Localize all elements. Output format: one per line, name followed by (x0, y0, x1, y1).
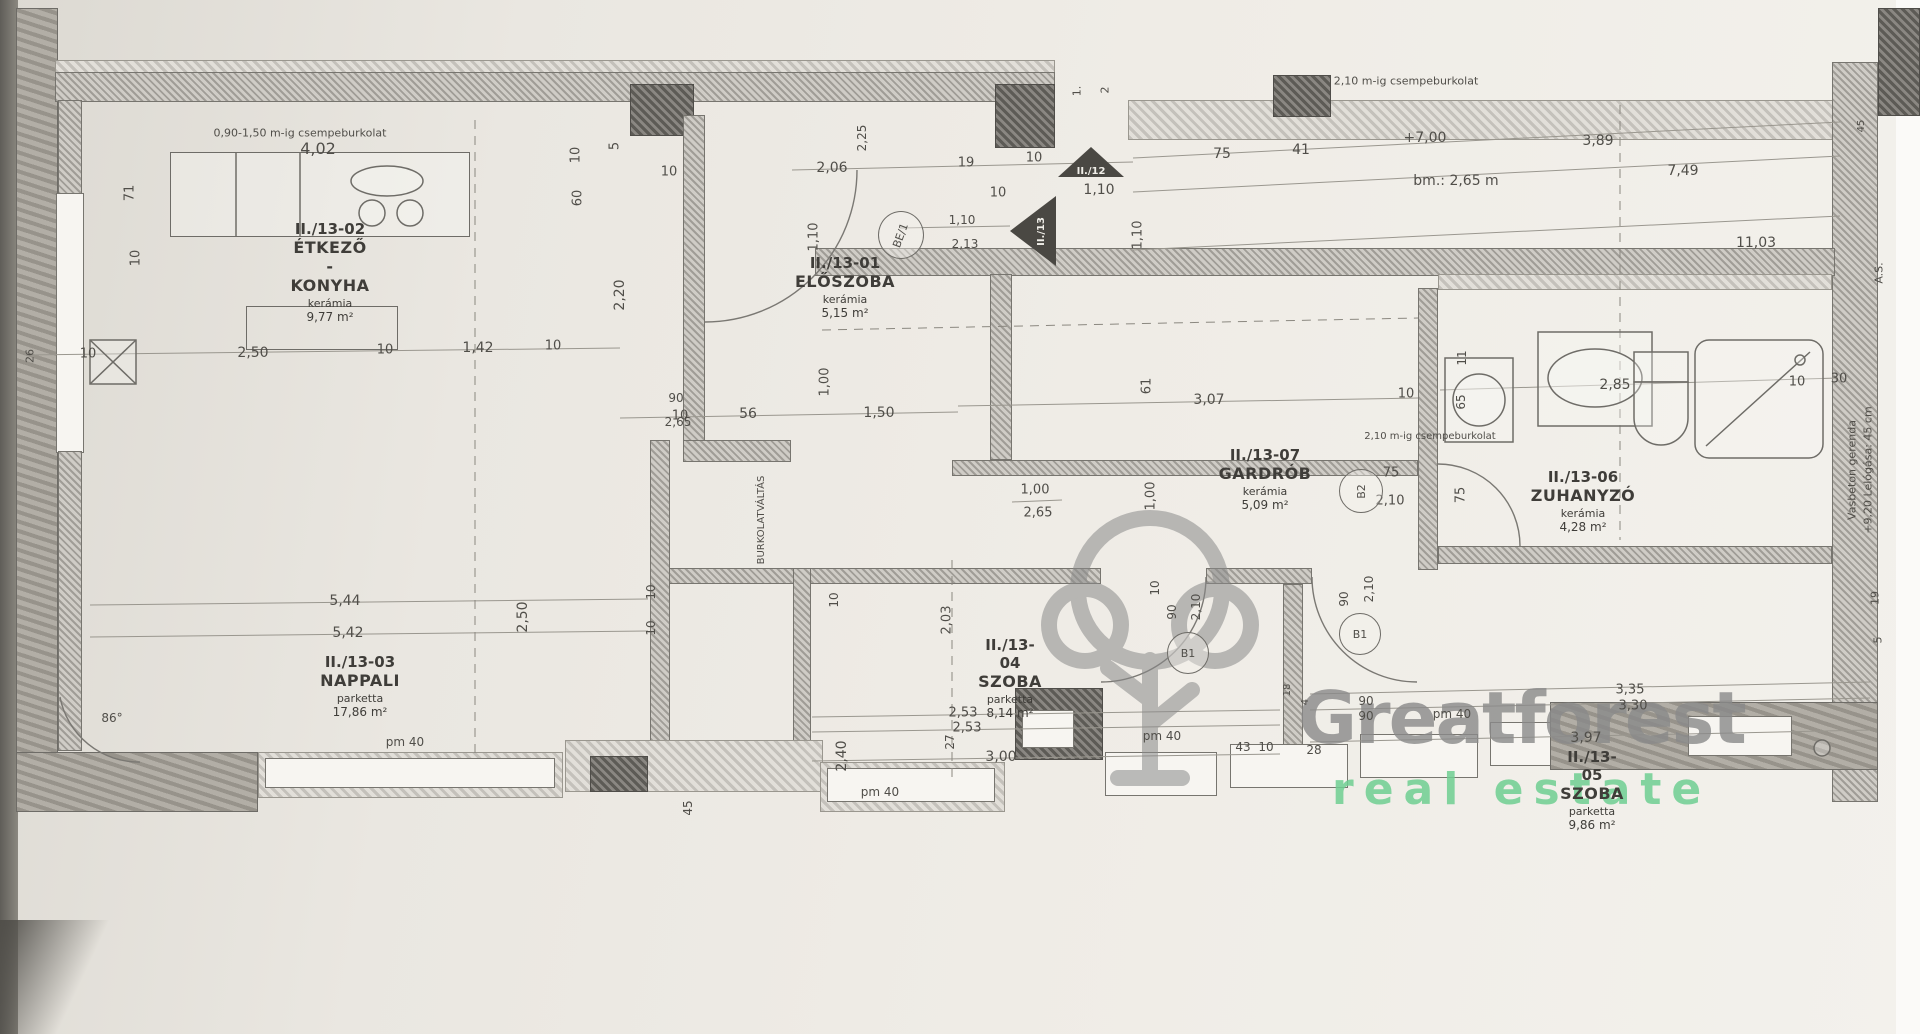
dim-label: 10 (1149, 580, 1161, 595)
dim-label: 19 (958, 157, 975, 170)
room-floor: parketta (978, 693, 1042, 706)
dim-label: 1,50 (863, 406, 894, 420)
dim-label: 5 (1873, 637, 1884, 644)
dim-label: 2,50 (237, 346, 268, 360)
dim-label: 28 (1306, 744, 1321, 756)
dim-label: BURKOLATVÁLTÁS (757, 476, 767, 565)
dim-label: 43 (1235, 741, 1250, 753)
room-name: ÉTKEZŐ - KONYHA (290, 238, 369, 295)
room-floor: parketta (320, 692, 400, 705)
room-floor: kerámia (1219, 485, 1312, 498)
dim-label: pm 40 (1143, 730, 1181, 742)
room-id: II./13-04 (978, 636, 1042, 672)
dim-label: 5 (609, 142, 622, 150)
dim-label: A.S. (1874, 262, 1885, 283)
dim-label: 26 (25, 349, 36, 363)
dim-label: 2,65 (665, 416, 692, 428)
dim-label: 10 (570, 147, 583, 164)
dim-label: 90 (1358, 710, 1373, 722)
floorplan-scan: Greatforest real estate II./13-01ELŐSZOB… (0, 0, 1920, 1034)
room-name: NAPPALI (320, 671, 400, 690)
dim-label: 1,10 (1083, 183, 1114, 197)
room-area: 9,86 m² (1560, 818, 1624, 832)
dim-label: 2,10 (1363, 576, 1375, 603)
dim-label: 4 (1301, 699, 1311, 705)
room-id: II./13-03 (320, 653, 400, 671)
room-id: II./13-02 (290, 220, 369, 238)
dim-label: 30 (1831, 373, 1848, 386)
level-triangle-label: II./12 (1077, 166, 1106, 177)
dim-label: Vasbeton gerenda (1847, 420, 1858, 520)
dim-label: 1,00 (1145, 482, 1158, 511)
room-id: II./13-07 (1219, 446, 1312, 464)
dim-label: pm 40 (1433, 708, 1471, 720)
room-label: II./13-02ÉTKEZŐ - KONYHAkerámia9,77 m² (290, 220, 369, 324)
dim-label: 1,42 (462, 341, 493, 355)
dim-label: 3,97 (1570, 731, 1601, 745)
room-name: SZOBA (1560, 784, 1624, 803)
room-id: II./13-06 (1531, 468, 1636, 486)
dim-label: 10 (1258, 741, 1273, 753)
dim-label: 2,65 (1024, 507, 1053, 520)
dim-label: pm 40 (386, 736, 424, 748)
dim-label: 2,10 (1190, 594, 1202, 621)
room-name: GARDRÓB (1219, 464, 1312, 483)
dim-label: 1,00 (1021, 484, 1050, 497)
dim-label: 27 (944, 734, 956, 749)
room-floor: kerámia (290, 297, 369, 310)
dim-label: 1,00 (819, 368, 832, 397)
dim-label: 2,10 m-ig csempeburkolat (1334, 76, 1479, 87)
dim-label: 65 (1455, 394, 1467, 409)
dim-label: 3,07 (1193, 393, 1224, 407)
door-tag-label: B1 (1353, 628, 1368, 641)
dim-label: 10 (80, 348, 97, 361)
dim-label: 61 (1141, 378, 1154, 395)
dim-label: 60 (572, 190, 585, 207)
dim-label: 10 (661, 166, 678, 179)
room-area: 8,14 m² (978, 706, 1042, 720)
dim-label: pm 40 (861, 786, 899, 798)
dim-label: 2,10 m-ig csempeburkolat (1364, 432, 1495, 442)
dim-label: 10 (130, 250, 143, 267)
dim-label: 10 (545, 340, 562, 353)
door-tag: BE/1 (878, 211, 924, 259)
dim-label: 3,00 (985, 750, 1016, 764)
room-name: SZOBA (978, 672, 1042, 691)
dim-label: 2 (1100, 87, 1111, 94)
dim-label: 10 (1789, 376, 1806, 389)
dim-label: 0,90-1,50 m-ig csempeburkolat (214, 128, 387, 139)
dim-label: 1,10 (1132, 221, 1145, 250)
dim-label: 3,30 (1619, 700, 1648, 713)
dim-label: 10 (645, 584, 657, 599)
dim-label: +7,00 (1404, 131, 1447, 145)
room-floor: parketta (1560, 805, 1624, 818)
dim-label: 5,42 (332, 626, 363, 640)
door-tag: B2 (1339, 469, 1383, 513)
dim-label: 4,02 (300, 141, 336, 157)
dim-label: 11,03 (1736, 236, 1776, 250)
dim-label: 56 (739, 407, 757, 421)
dim-label: 18 (1283, 684, 1293, 697)
dim-label: 1,10 (808, 223, 821, 252)
dim-label: 3,89 (1582, 134, 1613, 148)
door-tag-label: BE/1 (891, 221, 912, 249)
room-area: 5,15 m² (795, 306, 895, 320)
room-name: ELŐSZOBA (795, 272, 895, 291)
room-label: II./13-06ZUHANYZÓkerámia4,28 m² (1531, 468, 1636, 534)
room-label: II./13-07GARDRÓBkerámia5,09 m² (1219, 446, 1312, 512)
dim-label: 2,03 (941, 606, 954, 635)
door-tag: B1 (1339, 613, 1381, 655)
room-name: ZUHANYZÓ (1531, 486, 1636, 505)
dim-label: 10 (1026, 152, 1043, 165)
door-tag-label: B2 (1354, 484, 1367, 499)
room-label: II./13-04SZOBAparketta8,14 m² (978, 636, 1042, 720)
door-tag-label: B1 (1181, 647, 1196, 660)
dim-label: 2,53 (949, 707, 978, 720)
dim-label: 2,13 (952, 238, 979, 250)
dim-label: 90 (1338, 591, 1350, 606)
room-area: 17,86 m² (320, 705, 400, 719)
dim-label: 90 (1358, 695, 1373, 707)
dim-label: 10 (828, 592, 840, 607)
dim-label: 1,10 (949, 214, 976, 226)
dim-label: 2,50 (516, 601, 530, 632)
dim-label: 90 (668, 392, 683, 404)
dim-label: 41 (1292, 143, 1310, 157)
dim-label: 75 (1455, 487, 1468, 504)
dim-label: 75 (1383, 467, 1400, 480)
door-tag: B1 (1167, 632, 1209, 674)
dim-label: 45 (1857, 120, 1867, 133)
dim-label: 10 (377, 344, 394, 357)
dim-label: 10 (1398, 388, 1415, 401)
room-area: 5,09 m² (1219, 498, 1312, 512)
dim-label: 7,49 (1667, 164, 1698, 178)
dim-label: 3,35 (1616, 684, 1645, 697)
room-label: II./13-01ELŐSZOBAkerámia5,15 m² (795, 254, 895, 320)
dim-label: 90 (1166, 604, 1178, 619)
dim-label: 11 (1456, 350, 1468, 365)
room-area: 9,77 m² (290, 310, 369, 324)
dim-label: +9,20 Lelógása: 45 cm (1863, 406, 1874, 533)
dim-label: 2,53 (953, 722, 982, 735)
dim-label: 2,85 (1599, 378, 1630, 392)
dim-label: 1. (1072, 86, 1083, 97)
dim-label: 45 (682, 800, 694, 815)
room-area: 4,28 m² (1531, 520, 1636, 534)
dim-label: 2,25 (856, 125, 868, 152)
dim-label: 2,06 (816, 161, 847, 175)
room-id: II./13-05 (1560, 748, 1624, 784)
dim-label: 5,44 (329, 594, 360, 608)
room-floor: kerámia (795, 293, 895, 306)
dim-label: 2,20 (613, 279, 627, 310)
dim-label: 10 (990, 187, 1007, 200)
dim-label: 19 (1870, 591, 1881, 605)
dim-label: 2,40 (835, 740, 849, 771)
dim-label: bm.: 2,65 m (1413, 174, 1498, 188)
level-triangle-label: II./13 (1036, 217, 1047, 246)
room-label: II./13-03NAPPALIparketta17,86 m² (320, 653, 400, 719)
watermark-subtitle: real estate (1332, 764, 1711, 815)
dim-label: 10 (645, 620, 657, 635)
room-label: II./13-05SZOBAparketta9,86 m² (1560, 748, 1624, 832)
dim-label: 75 (1213, 147, 1231, 161)
dim-label: 71 (124, 185, 137, 202)
dim-label: 86° (101, 712, 122, 724)
room-floor: kerámia (1531, 507, 1636, 520)
room-id: II./13-01 (795, 254, 895, 272)
